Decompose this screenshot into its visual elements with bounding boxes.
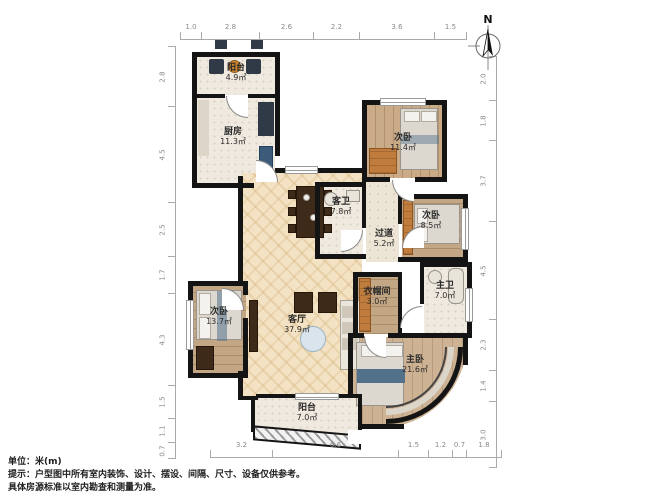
wardrobe: [369, 148, 397, 174]
dim-value: 3.2: [211, 441, 272, 449]
armchair: [294, 292, 313, 313]
wall: [238, 176, 243, 285]
dim-value: 2.8: [159, 71, 167, 82]
dim-value: 3.6: [360, 23, 434, 31]
wall: [442, 100, 447, 182]
note-units: 单位：米(m): [8, 456, 305, 469]
wall: [420, 262, 472, 267]
wall: [243, 281, 248, 295]
pillow-icon: [199, 293, 211, 315]
chair: [324, 207, 332, 216]
wall: [197, 94, 225, 98]
chair: [288, 224, 296, 233]
dim-value: 1.5: [399, 441, 428, 449]
wall: [238, 396, 258, 400]
disclaimer-notes: 单位：米(m) 提示：户型图中所有室内装饰、设计、摆设、间隔、尺寸、设备仅供参考…: [8, 456, 305, 495]
washer-icon: [209, 59, 224, 74]
compass-label: N: [483, 13, 492, 26]
door-master-bath: [400, 306, 422, 328]
wall: [362, 100, 367, 182]
dim-value: 3.0: [480, 429, 488, 440]
wall: [315, 182, 366, 187]
sink-icon: [346, 190, 360, 202]
dim-value: 1.4: [480, 380, 488, 391]
wall: [362, 424, 404, 429]
ac-unit-icon: [215, 40, 227, 49]
wall: [192, 183, 254, 188]
wall: [248, 94, 280, 98]
dim-value: 2.8: [202, 23, 259, 31]
dim-value: 2.2: [314, 23, 359, 31]
wall: [420, 262, 424, 304]
wall: [362, 177, 390, 182]
dim-value: 6.6: [273, 441, 398, 449]
compass-icon: N: [466, 12, 510, 76]
dim-value: 2.5: [159, 224, 167, 235]
chair: [324, 224, 332, 233]
window: [285, 166, 318, 174]
dim-value: 4.5: [159, 149, 167, 160]
window: [295, 393, 339, 400]
wall: [353, 272, 402, 277]
armchair: [318, 292, 337, 313]
toilet-icon: [324, 192, 338, 206]
pillow-icon: [417, 208, 428, 224]
chair: [288, 207, 296, 216]
dimension-line-left: 2.8 4.5 2.5 1.7 4.3 1.5 1.1 0.7: [168, 46, 176, 459]
counter: [198, 100, 209, 156]
washer-icon: [246, 59, 261, 74]
wall: [362, 182, 366, 228]
toilet-icon: [428, 270, 442, 284]
ac-unit-icon: [251, 40, 263, 49]
wall: [192, 52, 280, 57]
wall: [192, 52, 197, 188]
note-standard: 具体房源标准以室内勘查和测量为准。: [8, 482, 305, 495]
stove-icon: [258, 102, 274, 136]
bathtub-icon: [448, 268, 464, 304]
dimension-line-top: 1.0 2.8 2.6 2.2 3.6 1.5: [180, 32, 467, 40]
wall: [348, 333, 353, 398]
dim-value: 4.5: [480, 265, 488, 276]
dim-value: 0.7: [159, 445, 167, 456]
chair: [288, 190, 296, 199]
wall: [275, 102, 280, 156]
wall: [398, 272, 402, 338]
dresser: [196, 346, 214, 370]
hallway-floor: [366, 182, 399, 262]
window: [461, 208, 469, 250]
dim-value: 1.1: [159, 425, 167, 436]
wall: [388, 333, 424, 338]
dim-value: 1.8: [480, 115, 488, 126]
dim-value: 1.2: [429, 441, 452, 449]
rug-icon: [300, 326, 326, 352]
pillow-icon: [199, 317, 211, 339]
wardrobe: [359, 278, 371, 332]
wall: [463, 333, 468, 365]
dimension-line-right: 2.0 1.8 3.7 4.5 2.3 1.4 3.0: [489, 56, 497, 468]
wall: [188, 373, 248, 378]
wall: [315, 182, 320, 259]
wall: [243, 318, 248, 378]
dim-value: 2.6: [260, 23, 313, 31]
basin-icon: [228, 60, 241, 73]
dim-value: 3.7: [480, 175, 488, 186]
dim-value: 1.0: [181, 23, 201, 31]
dim-value: 2.3: [480, 339, 488, 350]
wall: [315, 254, 366, 259]
window: [186, 300, 194, 350]
wall: [188, 281, 248, 286]
wall: [415, 177, 447, 182]
bed-runner: [401, 135, 439, 144]
wall: [251, 396, 255, 432]
tv-cabinet: [249, 300, 258, 352]
pillow-icon: [421, 111, 437, 122]
wall: [353, 272, 358, 338]
dim-value: 1.5: [435, 23, 466, 31]
floorplan-image: 阳台 4.9㎡ 厨房 11.3㎡ 次卧 11.4㎡ 客卫 7.8㎡ 过道 5.2…: [0, 0, 667, 500]
note-tip: 提示：户型图中所有室内装饰、设计、摆设、间隔、尺寸、设备仅供参考。: [8, 469, 305, 482]
dim-value: 1.5: [159, 396, 167, 407]
window: [465, 288, 473, 322]
dim-value: 4.3: [159, 334, 167, 345]
pillow-icon: [404, 111, 420, 122]
dim-value: 1.7: [159, 269, 167, 280]
bed: [400, 108, 438, 170]
window: [380, 98, 426, 106]
dim-value: 0.7: [453, 441, 466, 449]
plate-icon: [303, 194, 310, 201]
